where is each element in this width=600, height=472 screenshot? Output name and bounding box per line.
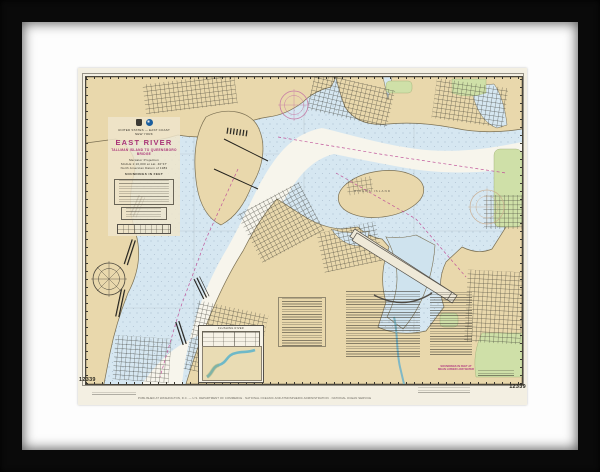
edition-note xyxy=(92,390,136,395)
inset-minimap xyxy=(202,346,262,381)
authorities-notes-box xyxy=(114,179,174,205)
title-block: UNITED STATES — EAST COAST NEW YORK EAST… xyxy=(108,117,180,236)
notes-block-mid xyxy=(278,297,326,347)
rikers-island-label: RIKERS ISLAND xyxy=(354,189,391,193)
notes-block-far-right xyxy=(430,291,472,355)
chart-state: NEW YORK xyxy=(108,132,180,136)
mat-board: UNITED STATES — EAST COAST NEW YORK EAST… xyxy=(22,22,578,450)
chart-title: EAST RIVER xyxy=(108,138,180,147)
flushing-river-inset: FLUSHING RIVER xyxy=(198,325,264,383)
inset-caption: FLUSHING RIVER xyxy=(199,327,263,330)
soundings-note: SOUNDINGS IN FEET AT MEAN LOWER LOW WATE… xyxy=(438,365,474,371)
chart-number-right: 12339 xyxy=(509,384,526,390)
inset-table xyxy=(202,331,260,347)
margin-notes xyxy=(418,386,470,393)
bar-scale xyxy=(117,224,171,234)
chart-subtitle: TALLMAN ISLAND TO QUEENSBORO BRIDGE xyxy=(108,148,180,156)
note-beside-soundings xyxy=(478,369,514,376)
notes-block-right xyxy=(346,291,420,357)
publisher-imprint: PUBLISHED AT WASHINGTON, D.C. — U.S. DEP… xyxy=(138,396,468,400)
caution-notes-box xyxy=(121,207,167,220)
chart-print: UNITED STATES — EAST COAST NEW YORK EAST… xyxy=(78,68,527,405)
chart-datum: North American Datum of 1983 xyxy=(108,166,180,170)
nos-crest-icon xyxy=(136,119,142,126)
noaa-logo-icon xyxy=(146,119,153,126)
framed-chart-photo: UNITED STATES — EAST COAST NEW YORK EAST… xyxy=(0,0,600,472)
chart-soundings-unit: SOUNDINGS IN FEET xyxy=(108,172,180,176)
chart-area: UNITED STATES — EAST COAST NEW YORK EAST… xyxy=(85,76,523,385)
chart-number-left: 12339 xyxy=(79,377,96,383)
